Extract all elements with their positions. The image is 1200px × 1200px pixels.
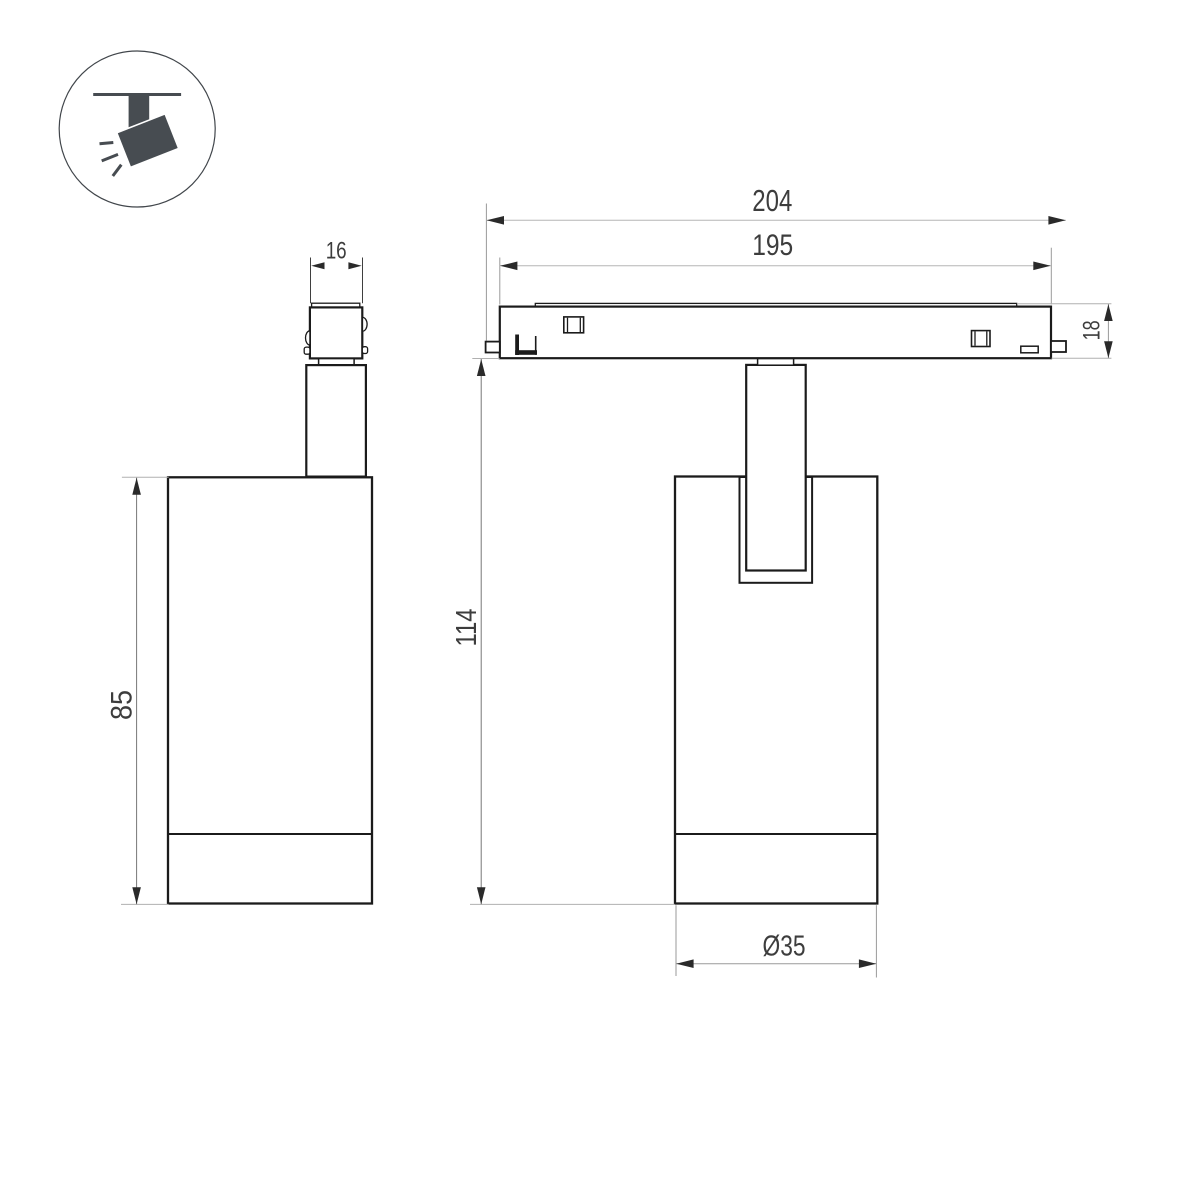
svg-text:85: 85 (106, 690, 139, 720)
svg-text:18: 18 (1079, 320, 1106, 340)
svg-text:204: 204 (752, 183, 792, 218)
svg-text:195: 195 (752, 229, 793, 262)
svg-text:Ø35: Ø35 (763, 930, 806, 962)
svg-text:114: 114 (451, 609, 483, 647)
svg-text:16: 16 (326, 238, 347, 265)
